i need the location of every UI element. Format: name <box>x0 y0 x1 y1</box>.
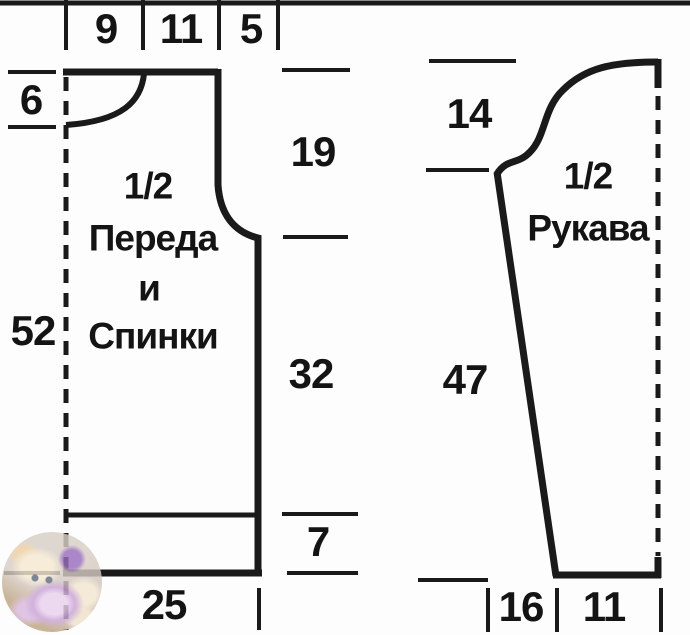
measure-cap-height: 14 <box>447 93 492 135</box>
measure-side-to-underarm: 32 <box>289 353 334 395</box>
knitting-pattern-schematic: 9 11 5 6 52 19 32 7 25 1/2 Переда и Спин… <box>0 0 690 635</box>
measure-neck-depth: 6 <box>20 79 42 121</box>
kitten-yarn-photo-watermark <box>2 532 102 632</box>
sleeve-title-line-1: 1/2 <box>564 158 612 195</box>
measure-armhole-depth: 19 <box>291 131 336 173</box>
body-title-line-4: Спинки <box>88 318 217 355</box>
measure-top-width-1: 9 <box>95 8 117 50</box>
body-title-line-1: 1/2 <box>124 168 172 205</box>
measure-body-half-width: 25 <box>142 584 187 626</box>
measure-top-width-3: 5 <box>240 8 262 50</box>
body-neck-curve <box>66 74 144 125</box>
body-title-line-3: и <box>138 270 160 307</box>
measure-hem-band-height: 7 <box>307 521 329 563</box>
measure-top-width-2: 11 <box>160 8 202 50</box>
measure-seam-length: 47 <box>443 359 488 401</box>
body-armhole-side <box>218 69 258 576</box>
body-title-line-2: Переда <box>89 220 217 257</box>
measure-total-length: 52 <box>11 310 56 352</box>
measure-half-cuff-width: 11 <box>583 586 625 628</box>
sleeve-title-line-2: Рукава <box>527 210 648 247</box>
measure-bottom-offset: 16 <box>499 586 544 628</box>
